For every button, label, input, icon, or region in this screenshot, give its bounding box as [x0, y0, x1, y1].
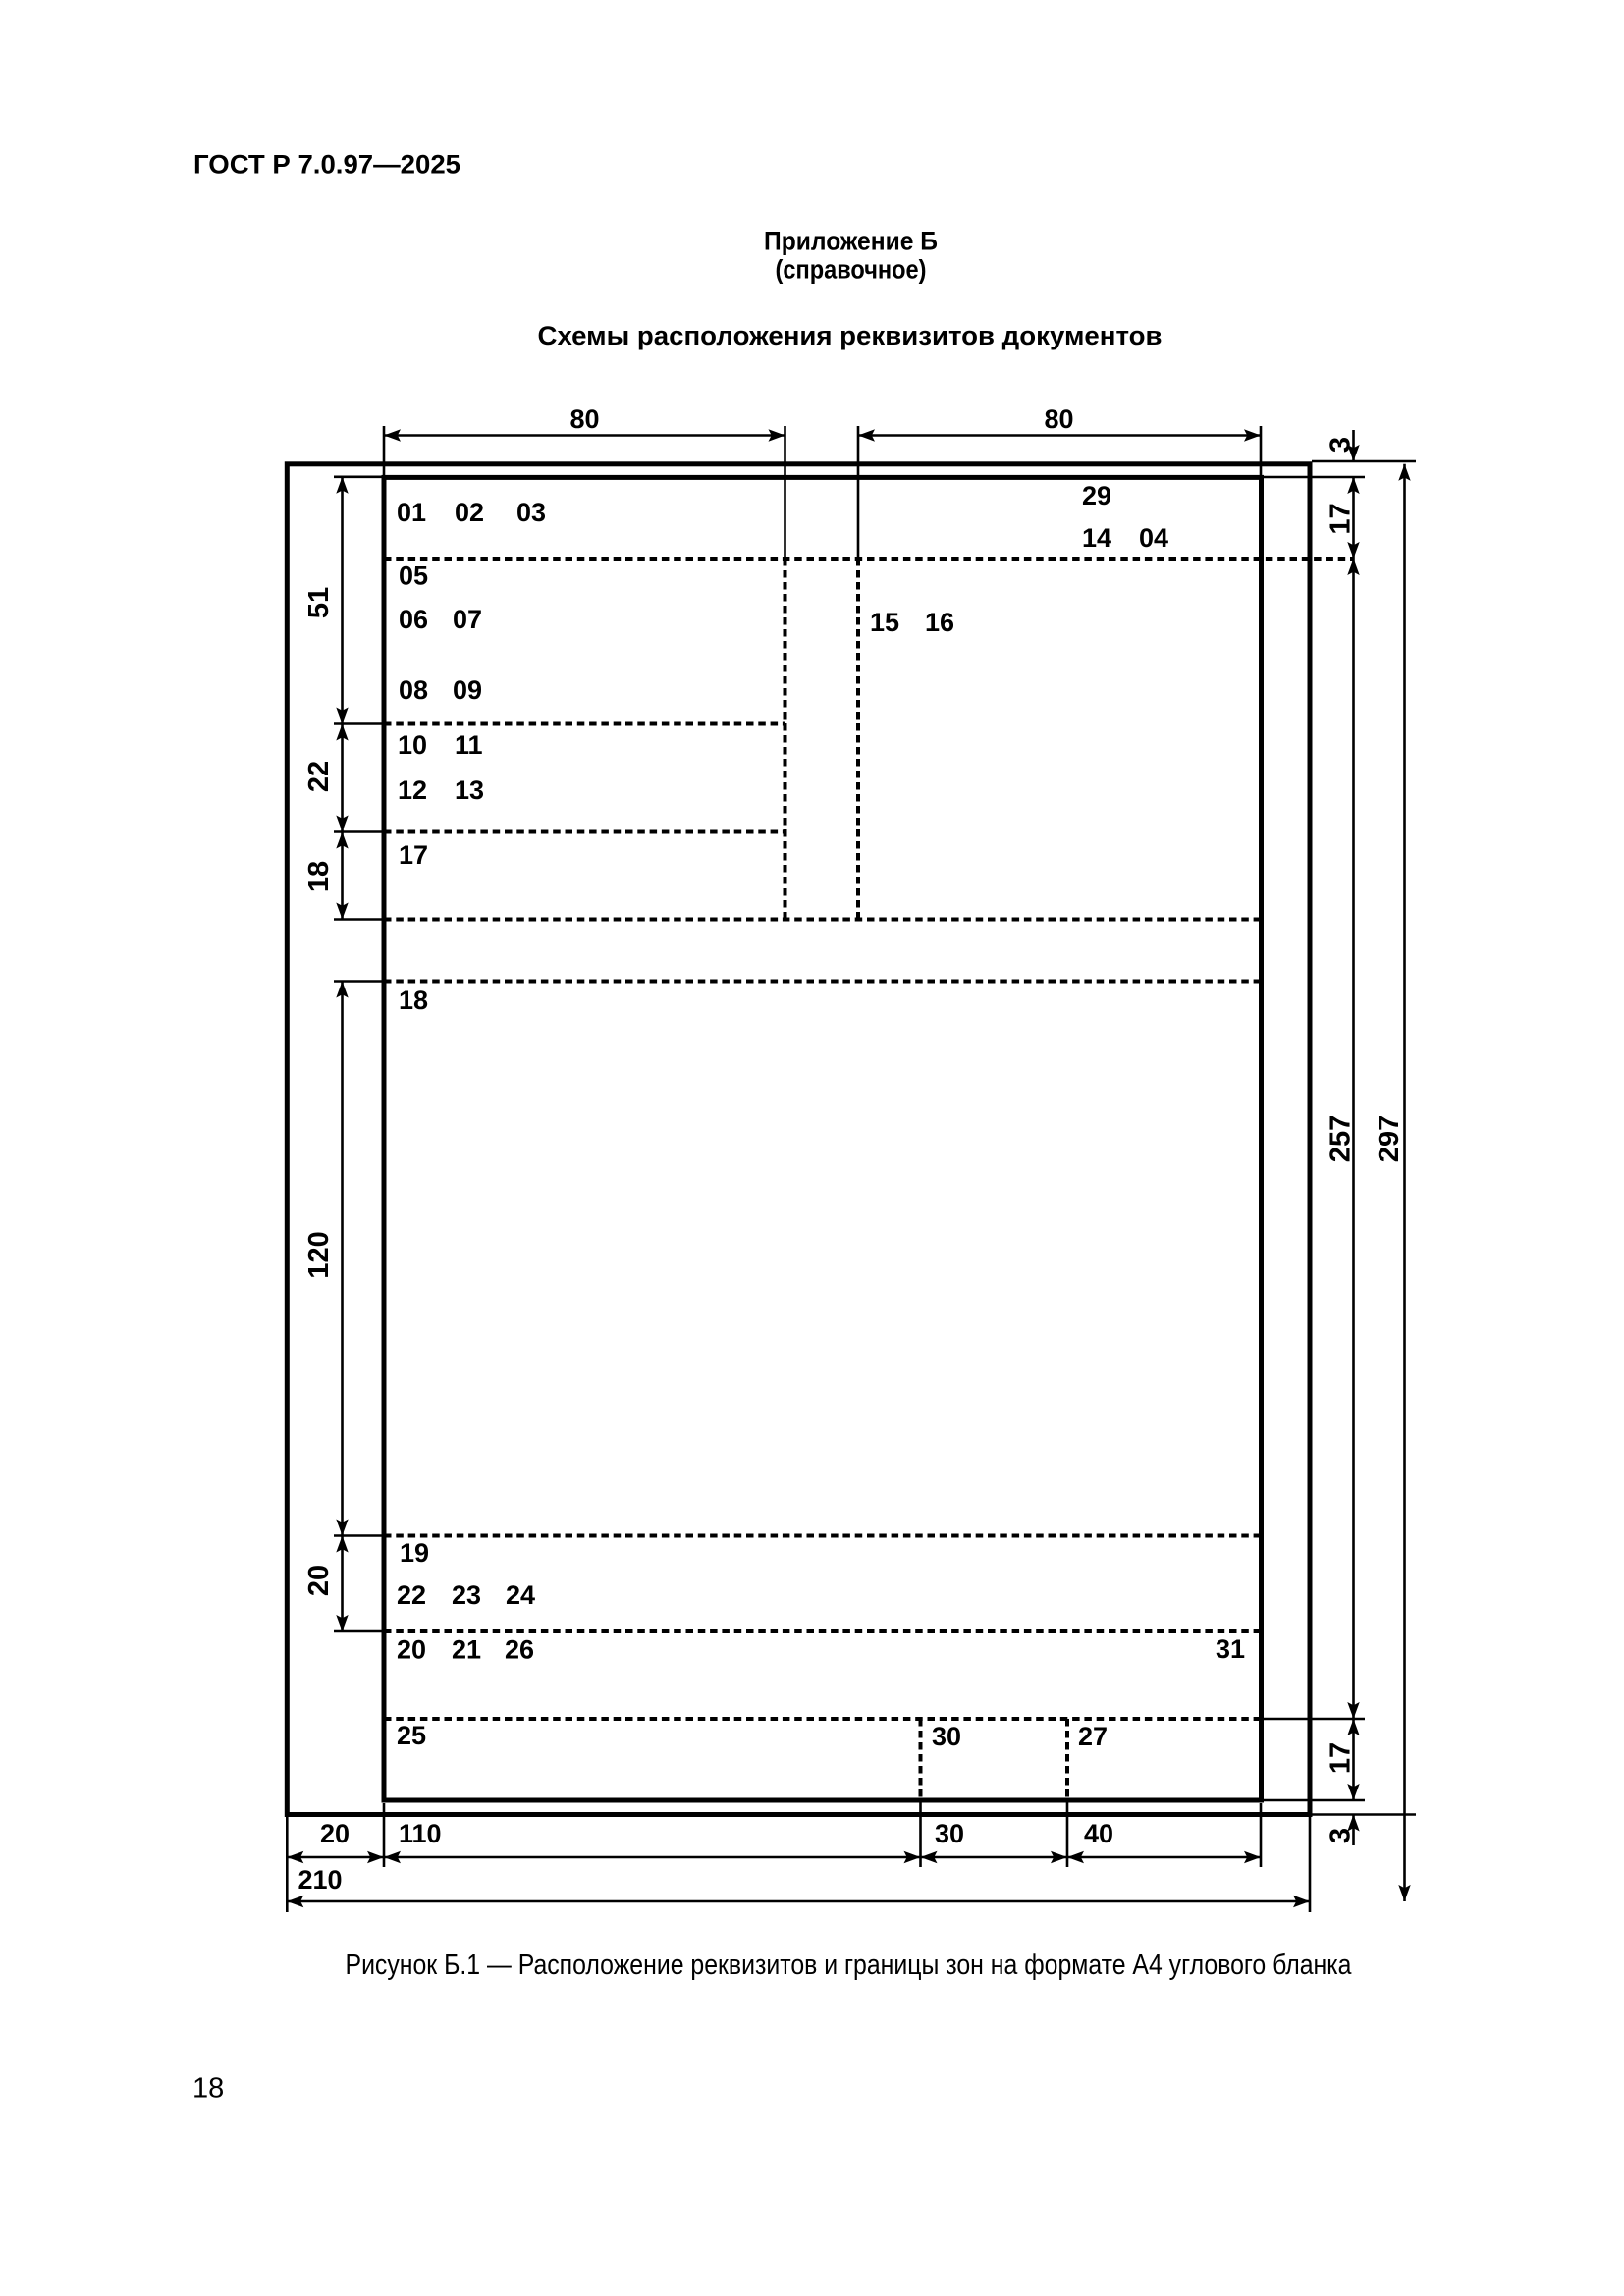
svg-text:19: 19: [400, 1538, 429, 1568]
svg-text:09: 09: [453, 675, 482, 705]
svg-text:297: 297: [1374, 1115, 1405, 1162]
svg-text:25: 25: [397, 1721, 426, 1750]
svg-text:16: 16: [925, 608, 954, 637]
svg-text:30: 30: [932, 1722, 961, 1751]
svg-text:11: 11: [455, 730, 483, 760]
svg-text:120: 120: [303, 1231, 335, 1278]
svg-text:257: 257: [1326, 1115, 1357, 1162]
svg-text:40: 40: [1084, 1819, 1113, 1848]
svg-text:15: 15: [870, 608, 899, 637]
svg-text:06: 06: [399, 605, 428, 634]
svg-text:20: 20: [397, 1635, 426, 1665]
svg-text:04: 04: [1139, 523, 1168, 553]
svg-text:02: 02: [455, 498, 484, 527]
svg-text:14: 14: [1082, 523, 1111, 553]
svg-text:27: 27: [1078, 1722, 1108, 1751]
svg-text:24: 24: [506, 1580, 535, 1610]
svg-text:03: 03: [516, 498, 546, 527]
svg-text:Схемы расположения реквизитов: Схемы расположения реквизитов документов: [538, 321, 1163, 350]
svg-text:17: 17: [1326, 503, 1357, 534]
svg-text:29: 29: [1082, 481, 1111, 510]
svg-text:17: 17: [399, 840, 428, 870]
svg-text:12: 12: [398, 775, 427, 805]
svg-text:80: 80: [1044, 404, 1073, 434]
svg-text:(справочное): (справочное): [776, 255, 927, 285]
svg-text:17: 17: [1326, 1742, 1357, 1774]
svg-text:20: 20: [320, 1819, 350, 1848]
svg-text:08: 08: [399, 675, 428, 705]
svg-text:31: 31: [1216, 1634, 1245, 1664]
svg-text:ГОСТ Р 7.0.97—2025: ГОСТ Р 7.0.97—2025: [193, 150, 460, 180]
svg-text:30: 30: [935, 1819, 964, 1848]
svg-text:22: 22: [397, 1580, 426, 1610]
svg-text:3: 3: [1326, 1828, 1357, 1843]
svg-text:18: 18: [192, 2073, 224, 2105]
svg-text:10: 10: [398, 730, 427, 760]
svg-text:51: 51: [303, 587, 335, 618]
svg-text:23: 23: [452, 1580, 481, 1610]
svg-text:05: 05: [399, 561, 428, 591]
svg-text:22: 22: [303, 761, 335, 792]
svg-text:3: 3: [1326, 437, 1357, 453]
svg-text:110: 110: [399, 1819, 442, 1848]
svg-text:13: 13: [455, 775, 484, 805]
svg-text:210: 210: [298, 1865, 343, 1895]
svg-text:21: 21: [452, 1635, 481, 1665]
svg-text:20: 20: [303, 1565, 335, 1596]
svg-text:01: 01: [397, 498, 426, 527]
svg-text:18: 18: [303, 861, 335, 892]
svg-text:07: 07: [453, 605, 482, 634]
svg-text:80: 80: [569, 404, 599, 434]
svg-text:18: 18: [399, 986, 428, 1015]
svg-text:Рисунок Б.1 — Расположение рек: Рисунок Б.1 — Расположение реквизитов и …: [346, 1949, 1353, 1981]
svg-text:Приложение Б: Приложение Б: [764, 227, 938, 256]
svg-text:26: 26: [505, 1635, 534, 1665]
